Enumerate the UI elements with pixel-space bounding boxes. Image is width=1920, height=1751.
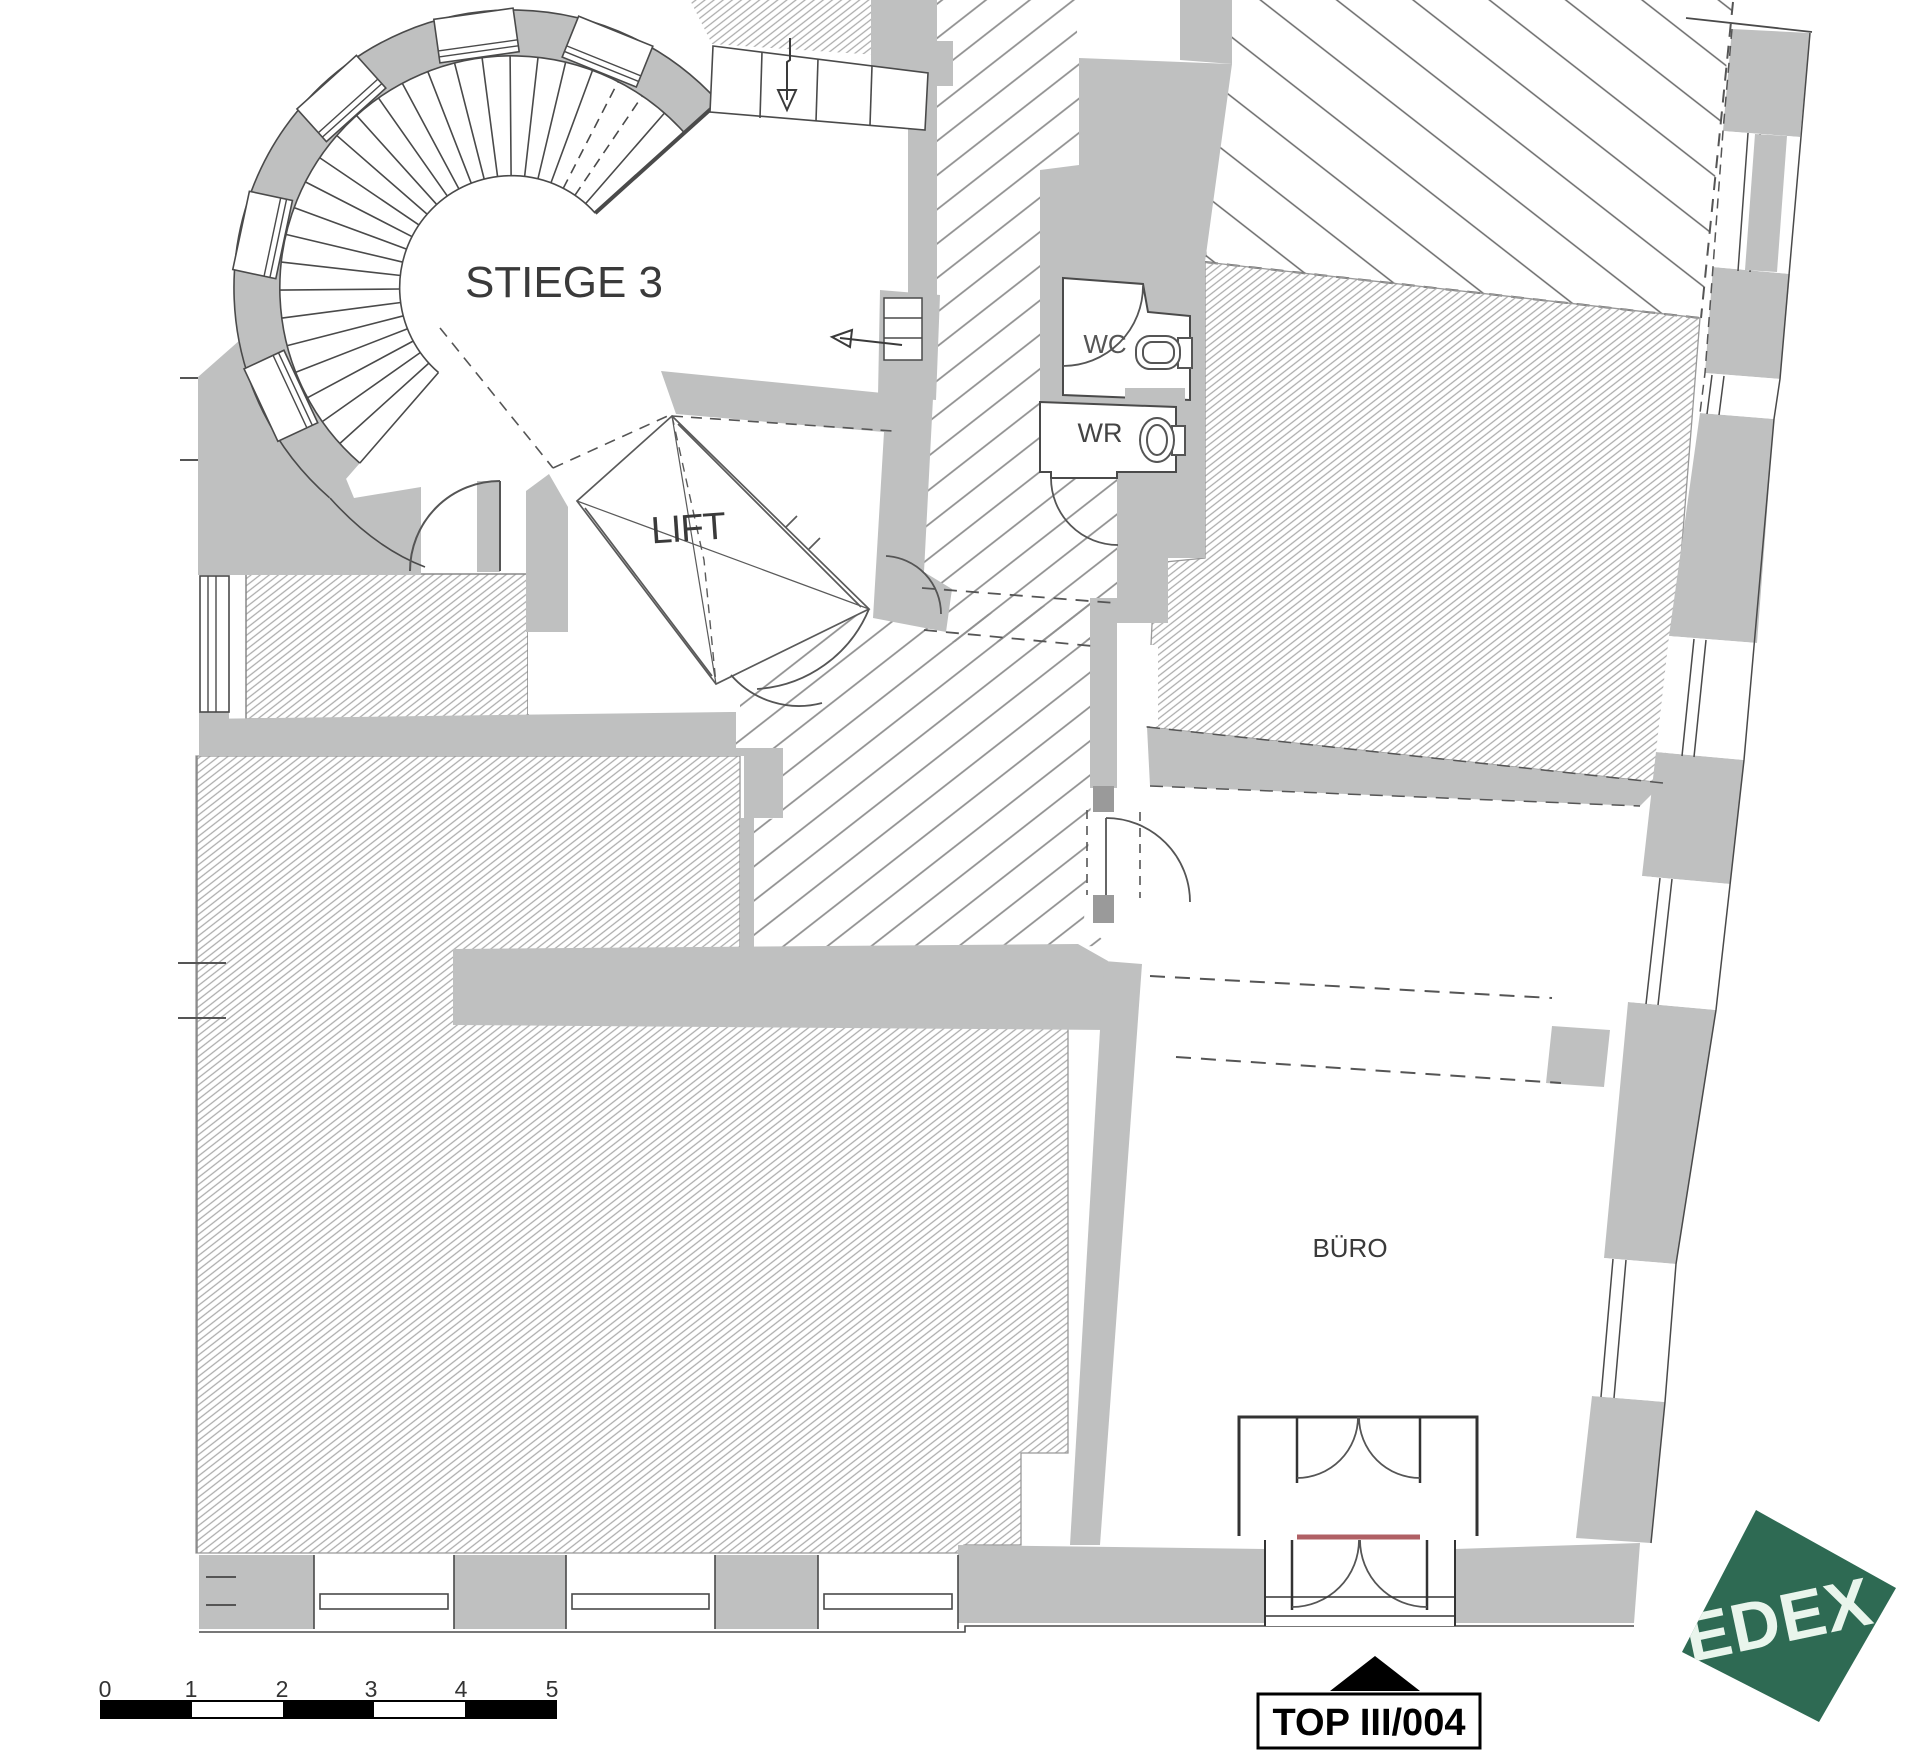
svg-text:WR: WR	[1078, 418, 1123, 448]
svg-text:LIFT: LIFT	[650, 505, 728, 552]
svg-text:STIEGE 3: STIEGE 3	[465, 258, 663, 307]
svg-text:2: 2	[276, 1676, 289, 1702]
svg-text:WC: WC	[1083, 329, 1126, 359]
svg-text:3: 3	[365, 1676, 378, 1702]
svg-text:BÜRO: BÜRO	[1312, 1233, 1387, 1263]
svg-text:4: 4	[455, 1676, 468, 1702]
svg-text:1: 1	[185, 1676, 198, 1702]
svg-text:TOP III/004: TOP III/004	[1273, 1702, 1466, 1744]
svg-text:5: 5	[546, 1676, 559, 1702]
svg-text:0: 0	[99, 1676, 112, 1702]
